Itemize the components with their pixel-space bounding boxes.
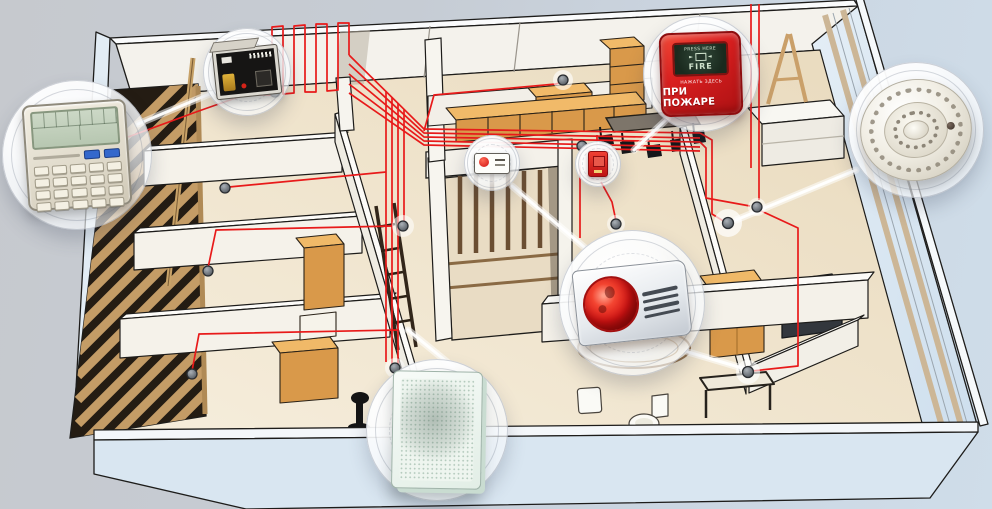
module-lid [209,38,259,53]
panel-label-strip [33,154,80,160]
callout-control-panel [2,80,152,230]
press-arrows-icon: ►◄ [689,53,712,62]
voice-alarm-speaker [391,370,483,490]
callout-manual-call-point: PRESS HERE ►◄ FIRE НАЖАТЬ ЗДЕСЬ ПРИ ПОЖА… [643,16,759,132]
siren-slots [642,285,680,318]
unit-red-indicator [479,157,489,167]
panel-blue-button [84,149,101,159]
panel-blue-button [104,148,121,158]
fire-label: FIRE [689,62,713,72]
callout-wall-speaker [366,359,508,501]
callout-smoke-detector [848,62,984,198]
front-wall [94,422,978,509]
panel-keypad [34,161,125,212]
compact-call-point [588,151,608,177]
fire-alarm-system-illustration: PRESS HERE ►◄ FIRE НАЖАТЬ ЗДЕСЬ ПРИ ПОЖА… [0,0,992,509]
callout-loop-module [203,28,291,116]
strobe-red-dome [580,273,642,335]
strobe-siren [571,259,692,346]
panel-lcd-display [30,106,120,150]
alarm-loop-module [213,45,282,99]
callout-strobe-siren [559,230,705,376]
call-point-main-label: ПРИ ПОЖАРЕ [662,85,741,110]
call-point-window: PRESS HERE ►◄ FIRE [672,41,729,77]
manual-call-point: PRESS HERE ►◄ FIRE НАЖАТЬ ЗДЕСЬ ПРИ ПОЖА… [659,31,744,118]
callout-compact-call-point [575,141,621,187]
smoke-detector [852,70,980,190]
wall-mounted-alarm-unit [474,153,510,174]
fire-alarm-control-panel [21,99,132,212]
module-led [241,83,246,88]
callout-wall-unit [464,135,520,191]
